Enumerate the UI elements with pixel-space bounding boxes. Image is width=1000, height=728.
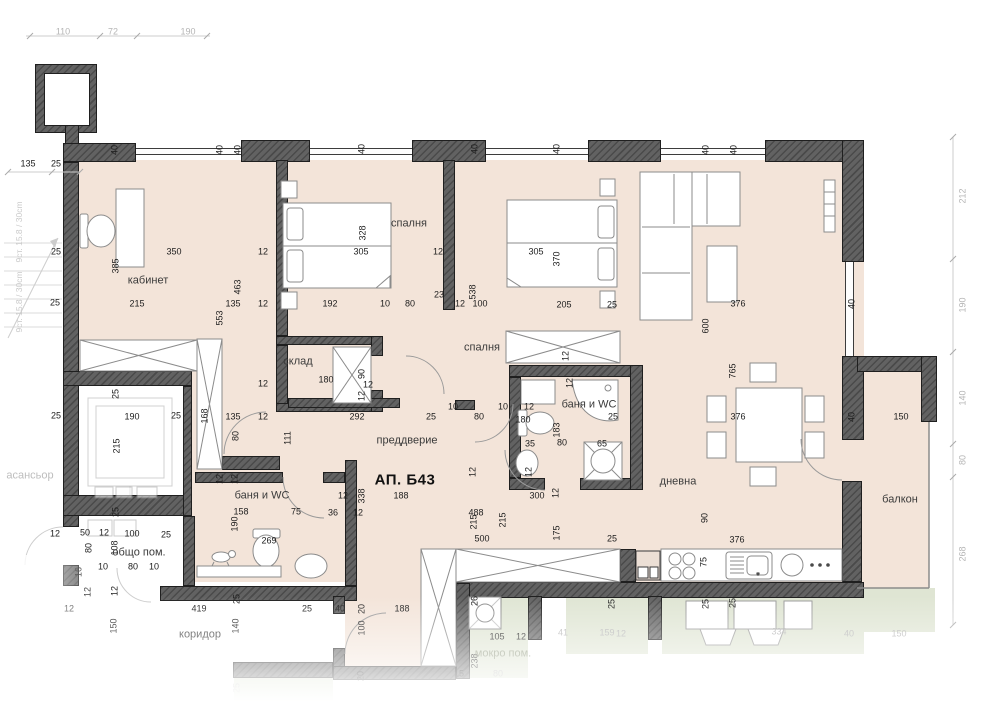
dimension-label: 80 (128, 563, 138, 572)
radiator (824, 180, 835, 232)
dimension-label: 215 (129, 300, 144, 309)
dimension-label: 25 (233, 683, 242, 693)
dimension-label: 268 (959, 546, 968, 561)
dimension-label: 12 (50, 530, 60, 539)
dimension-label: 50 (80, 529, 90, 538)
washbasin (295, 554, 327, 578)
dimension-label: 25 (729, 598, 738, 608)
dimension-label: 12 (258, 248, 268, 257)
dimension-label: 140 (959, 390, 968, 405)
dining-table (736, 388, 802, 462)
dimension-label: 12 (525, 467, 534, 477)
dimension-label: 180 (515, 416, 530, 425)
dimension-label: 376 (730, 300, 745, 309)
dimension-label: 385 (112, 258, 121, 273)
dimension-label: 40 (358, 144, 367, 154)
dimension-label: 12 (469, 467, 478, 477)
pet-figure (212, 551, 236, 567)
dimension-label: 192 (322, 300, 337, 309)
dimension-label: 12 (84, 587, 93, 597)
room-label-bath-wc-2: баня и WC (235, 491, 290, 502)
dimension-label: 350 (166, 248, 181, 257)
dimension-label: 269 (261, 537, 276, 546)
dimension-label: 190 (959, 297, 968, 312)
dimension-label: 80 (557, 439, 567, 448)
kitchen-basin (781, 554, 803, 576)
dimension-label: 463 (234, 279, 243, 294)
dimension-label: 765 (729, 363, 738, 378)
dimension-label: 12 (566, 378, 575, 388)
dimension-label: 12 (363, 381, 373, 390)
dimension-label: 25 (607, 535, 617, 544)
dimension-label: 215 (470, 514, 479, 529)
dimension-label: 100 (124, 530, 139, 539)
dimension-label: 40 (702, 145, 711, 155)
dimension-label: 25 (112, 507, 121, 517)
dimension-label: 168 (201, 408, 210, 423)
dimension-label: 135 (225, 413, 240, 422)
dimension-label: 15 (454, 670, 464, 679)
dining-chair (707, 396, 726, 422)
dining-chair (750, 467, 776, 486)
dimension-label: 25 (426, 413, 436, 422)
dimension-label: 150 (893, 413, 908, 422)
dimension-label: 40 (848, 412, 857, 422)
dimension-label: 10 (498, 403, 508, 412)
stair-note: 9ст. 15.8 / 30cm (15, 201, 24, 262)
dimension-label: 370 (553, 251, 562, 266)
dimension-label: 80 (474, 413, 484, 422)
dimension-label: 80 (493, 670, 503, 679)
dimension-label: 12 (231, 474, 240, 484)
dimension-label: 135 (225, 300, 240, 309)
dimension-label: 12 (616, 630, 626, 639)
dimension-label: 40 (234, 145, 243, 155)
dimension-label: 41 (558, 629, 568, 638)
dimension-label: 12 (524, 403, 534, 412)
dimension-label: 40 (730, 145, 739, 155)
dimension-label: 538 (469, 284, 478, 299)
dimension-label: 12 (111, 586, 120, 596)
dimension-label: 25 (608, 599, 617, 609)
dimension-label: 16 (75, 567, 84, 577)
dimension-label: 90 (701, 513, 710, 523)
dimension-label: 10 (380, 300, 390, 309)
room-label-living-room: дневна (660, 477, 697, 488)
dimension-label: 190 (180, 28, 195, 37)
dimension-label: 159 (599, 629, 614, 638)
dimension-label: 12 (216, 474, 225, 484)
dimension-label: 110 (56, 28, 70, 37)
dimension-label: 80 (232, 431, 241, 441)
stair-note: 9ст. 15.8 / 30cm (15, 271, 24, 332)
dimension-label: 80 (405, 300, 415, 309)
dimension-label: 90 (358, 369, 367, 379)
dimension-label: 25 (51, 248, 61, 257)
dimension-label: 23 (434, 291, 444, 300)
dimension-label: 215 (499, 512, 508, 527)
dimension-label: 175 (553, 525, 562, 540)
dimension-label: 40 (844, 630, 854, 639)
dimension-label: 183 (553, 422, 562, 437)
wardrobe (421, 549, 456, 666)
dimension-label: 26 (471, 596, 480, 606)
dimension-label: 40 (848, 299, 857, 309)
dimension-label: 212 (959, 188, 968, 203)
dimension-label: 328 (359, 225, 368, 240)
dimension-label: 75 (700, 557, 709, 567)
door-arc (117, 568, 151, 602)
dimension-label: 25 (112, 389, 121, 399)
dimension-label: 188 (394, 605, 409, 614)
dimension-label: 12 (358, 391, 367, 401)
dimension-label: 25 (51, 412, 61, 421)
dimension-label: 72 (108, 28, 118, 37)
room-label-elevator: асансьор (6, 471, 53, 482)
dimension-label: 190 (124, 413, 139, 422)
washing-machine (521, 380, 555, 404)
dimension-label: 36 (328, 509, 338, 518)
dimension-label: 338 (358, 488, 367, 503)
wardrobe (456, 549, 620, 582)
dimension-label: 500 (474, 535, 489, 544)
dimension-label: 40 (111, 145, 120, 155)
dimension-label: 25 (302, 605, 312, 614)
dimension-label: 40 (335, 605, 345, 614)
dimension-label: 25 (51, 160, 61, 169)
dimension-label: 12 (516, 633, 526, 642)
dimension-label: 12 (433, 248, 443, 257)
dimension-label: 80 (959, 455, 968, 465)
dimension-label: 25 (171, 412, 181, 421)
room-label-vestibule: преддверие (376, 436, 437, 447)
door-arc (406, 356, 444, 394)
room-label-bedroom-1: спалня (391, 219, 427, 230)
dimension-label: 180 (318, 376, 333, 385)
dimension-label: 305 (528, 248, 543, 257)
kitchen-appliance (636, 551, 660, 580)
dimension-label: 150 (891, 630, 906, 639)
dimension-label: 376 (729, 536, 744, 545)
room-label-corridor: коридор (179, 630, 221, 641)
room-label-office: кабинет (128, 276, 168, 287)
office-desk (116, 189, 144, 267)
dimension-label: 25 (607, 301, 617, 310)
dimension-label: 80 (85, 543, 94, 553)
dimension-label: 300 (529, 492, 544, 501)
room-label-common-room: общо пом. (112, 548, 165, 559)
dimension-label: 20 (358, 604, 367, 614)
dimension-label: 40 (471, 144, 480, 154)
dimension-label: 292 (349, 413, 364, 422)
dimension-label: 65 (597, 440, 607, 449)
room-label-bath-wc-1: баня и WC (562, 400, 617, 411)
dimension-label: 10 (98, 563, 108, 572)
room-label-bedroom-2: спалня (464, 343, 500, 354)
room-label-storage: склад (283, 357, 312, 368)
dimension-label: 135 (20, 160, 35, 169)
dining-chair (707, 432, 726, 458)
dimension-label: 12 (338, 492, 348, 501)
dimension-label: 305 (353, 248, 368, 257)
dimension-label: 100 (472, 300, 487, 309)
dimension-label: 376 (730, 413, 745, 422)
dimension-label: 25 (702, 599, 711, 609)
dimension-label: 12 (552, 488, 561, 498)
wardrobe (80, 340, 197, 371)
dimension-label: 25 (233, 594, 242, 604)
dining-chair (805, 396, 824, 422)
dimension-label: 158 (233, 508, 248, 517)
dimension-label: 419 (191, 605, 206, 614)
dimension-label: 12 (258, 300, 268, 309)
dimension-label: 12 (99, 529, 109, 538)
kitchen-sink (726, 552, 772, 579)
dimension-label: 190 (231, 516, 240, 531)
dimension-label: 10 (448, 403, 458, 412)
dimension-label: 20 (357, 671, 366, 681)
bath-shelf (197, 566, 281, 577)
room-label-wet-room: мокро пом. (475, 649, 531, 660)
bed-1 (281, 181, 391, 309)
dimension-label: 12 (258, 413, 268, 422)
dimension-label: 12 (353, 509, 363, 518)
plan-graphics (0, 0, 1000, 728)
floor-plan: 1107219021219014080268135252525254040404… (0, 0, 1000, 728)
dimension-label: 111 (284, 431, 293, 445)
dimension-label: 10 (149, 563, 159, 572)
dimension-label: 205 (556, 301, 571, 310)
dimension-label: 150 (110, 618, 119, 633)
dimension-label: 100 (358, 620, 367, 635)
dimension-label: 12 (258, 380, 268, 389)
dimension-label: 140 (232, 618, 241, 633)
bed-2 (507, 179, 617, 308)
dimension-label: 35 (525, 440, 535, 449)
dimension-label: 12 (455, 300, 465, 309)
dimension-label: 188 (393, 492, 408, 501)
dining-chair (750, 363, 776, 382)
dimension-label: 600 (702, 318, 711, 333)
coffee-table (707, 246, 737, 302)
room-label-balcony: балкон (882, 495, 918, 506)
dimension-label: 40 (553, 144, 562, 154)
dimension-label: 215 (113, 438, 122, 453)
dimension-label: 25 (608, 413, 618, 422)
dining-chair (805, 432, 824, 458)
apartment-title: АП. Б43 (375, 472, 436, 489)
dimension-label: 25 (50, 299, 60, 308)
office-chair (80, 214, 115, 248)
dimension-label: 334 (771, 628, 786, 637)
dimension-label: 105 (489, 633, 504, 642)
dimension-label: 12 (64, 605, 74, 614)
dimension-label: 40 (216, 145, 225, 155)
wardrobe (197, 339, 222, 469)
dimension-label: 12 (562, 351, 571, 361)
dimension-label: 25 (161, 531, 171, 540)
dimension-label: 553 (216, 310, 225, 325)
counter-dots (810, 563, 830, 567)
dimension-label: 75 (291, 508, 301, 517)
